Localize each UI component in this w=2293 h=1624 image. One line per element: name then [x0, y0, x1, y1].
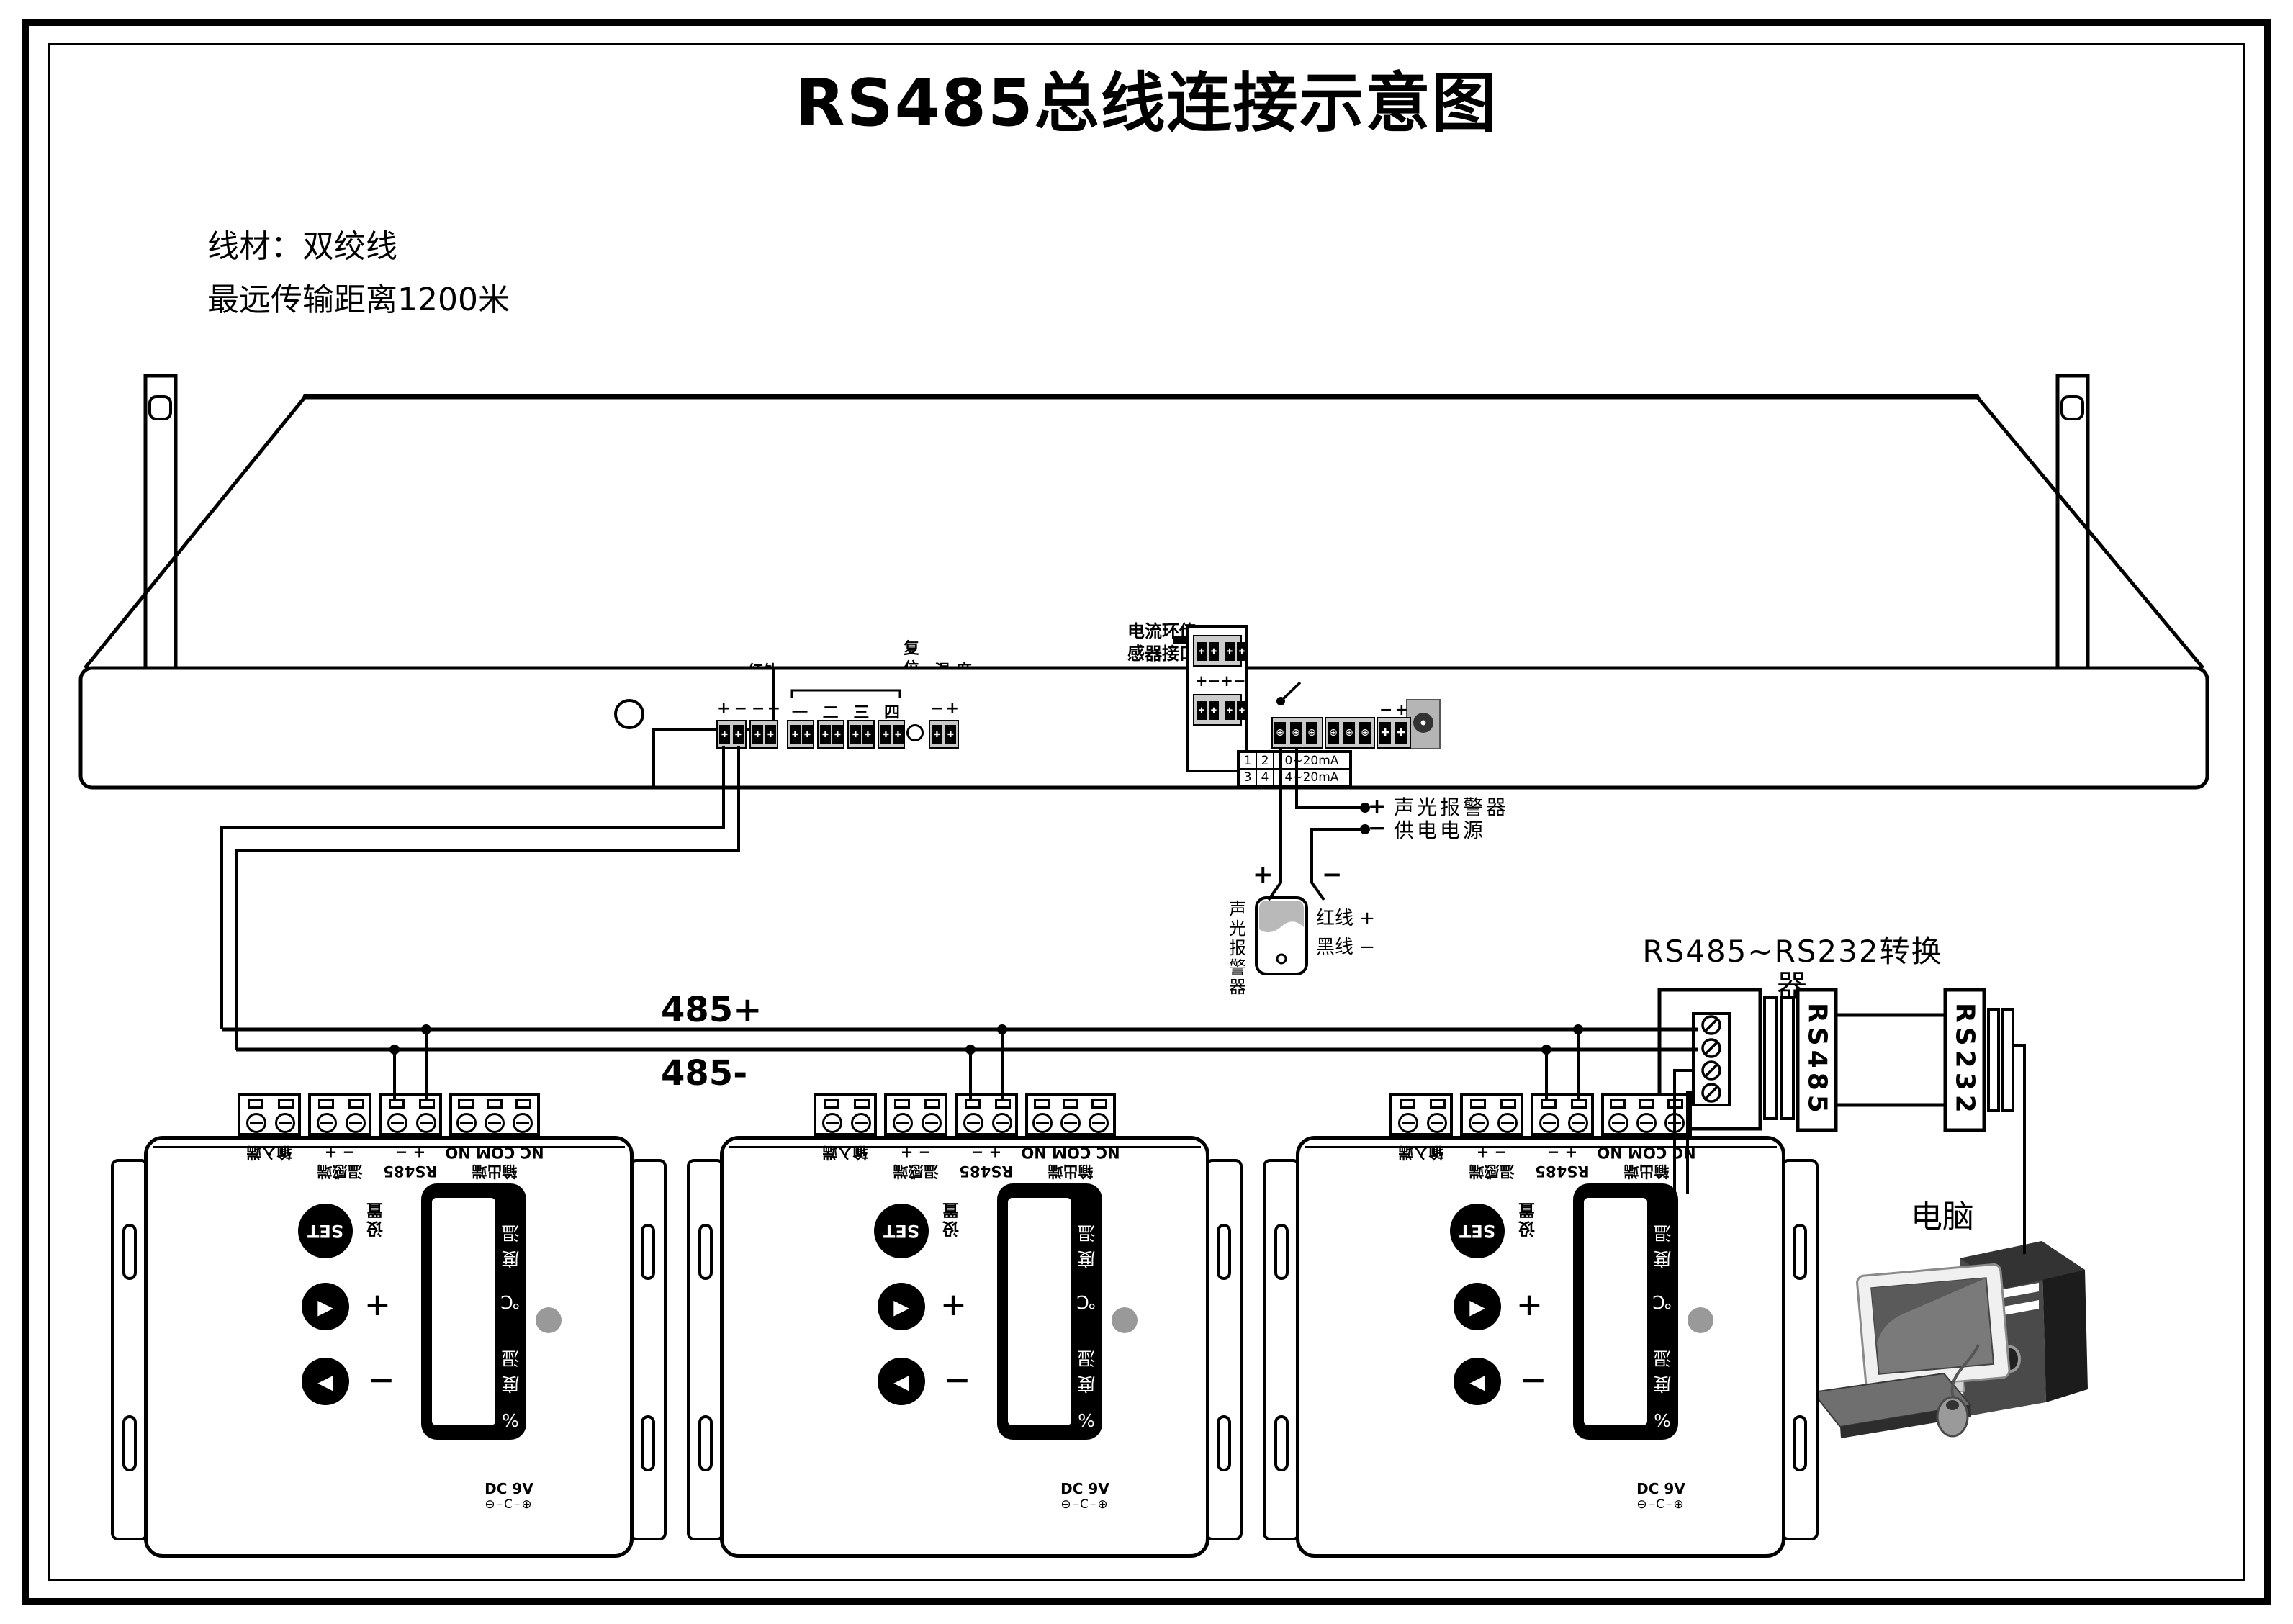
rs485-bus-wiring: [222, 746, 1698, 1099]
diagram-page: RS485总线连接示意图 线材：双绞线 最远传输距离1200米: [0, 0, 2293, 1624]
converter-power-wire-1: [1675, 1070, 1693, 1194]
relay-switch-blade: [1281, 682, 1300, 701]
alarm-wiring: [1269, 682, 1370, 900]
converter-power-wire-2: [1688, 1093, 1693, 1194]
alarm-plus-wire: [1269, 747, 1281, 900]
alarm-relay-wire: [1297, 747, 1362, 808]
converter-wiring: [1675, 1045, 2024, 1254]
bus-feed-minus-wire: [236, 746, 739, 1050]
rs232-to-computer-wire: [2013, 1045, 2024, 1254]
switch-input-bracket: [792, 690, 900, 698]
bus-feed-plus-wire: [222, 746, 724, 1029]
wire-dot: [1360, 824, 1370, 834]
alarm-minus-wire: [1312, 829, 1365, 900]
wire-dot: [1360, 803, 1370, 813]
